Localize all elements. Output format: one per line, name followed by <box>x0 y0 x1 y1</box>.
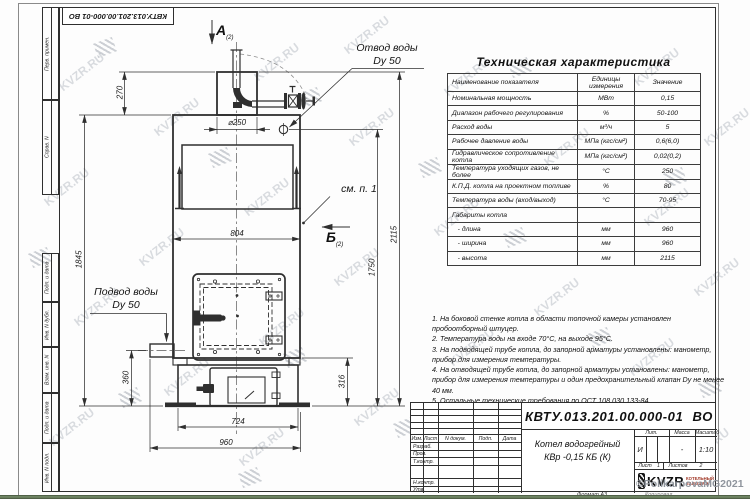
product-name: Котел водогрейный КВр -0,15 КБ (К) <box>521 429 634 473</box>
table-cell: К.П.Д. котла на проектном топливе <box>448 179 578 193</box>
table-row: Габариты котла <box>448 208 701 222</box>
dim-label-724: 724 <box>217 417 259 426</box>
table-cell: МПа (кгс/см²) <box>578 135 635 149</box>
dimension-lines <box>85 72 400 448</box>
dim-label-1845: 1845 <box>75 245 84 275</box>
tech-table-header: Наименование показателя Единицы измерени… <box>448 74 701 92</box>
dim-label-360: 360 <box>122 363 131 393</box>
table-cell: мм <box>578 237 635 251</box>
tb-col-ndokum: N докум. <box>438 436 473 442</box>
tb-sheet-label: Лист <box>636 463 654 469</box>
table-cell: - длина <box>448 222 578 236</box>
table-row: Расход водым³/ч5 <box>448 120 701 134</box>
product-line2: КВр -0,15 КБ (К) <box>544 451 611 464</box>
table-cell: - ширина <box>448 237 578 251</box>
table-cell: Диапазон рабочего регулирования <box>448 106 578 120</box>
dim-label-316: 316 <box>338 367 347 397</box>
table-cell: Температура уходящих газов, не более <box>448 164 578 179</box>
drawing-sheet: KVZR.RUKVZR.RUKVZR.RUKVZR.RUKVZR.RUKVZR.… <box>0 0 750 500</box>
table-cell: °С <box>578 193 635 207</box>
table-cell: 0,6(6,0) <box>635 135 701 149</box>
table-cell: Гидравлическое сопротивление котла <box>448 149 578 164</box>
table-cell: Температура воды (вход/выход) <box>448 193 578 207</box>
title-block-designation: КВТУ.013.201.00.000-01 ВО <box>521 403 717 429</box>
tb-col-list: Лист <box>423 436 438 442</box>
tech-table: Наименование показателя Единицы измерени… <box>447 73 701 266</box>
table-row: Рабочее давление водыМПа (кгс/см²)0,6(6,… <box>448 135 701 149</box>
swing-arc <box>240 54 307 99</box>
outlet-label: Отвод воды <box>348 42 426 54</box>
col-header: Наименование показателя <box>448 74 578 92</box>
table-cell: МПа (кгс/см²) <box>578 149 635 164</box>
table-cell: Рабочее давление воды <box>448 135 578 149</box>
tb-row-utv: Утв. <box>413 487 425 493</box>
table-cell <box>578 208 635 222</box>
dim-label-270: 270 <box>116 78 125 108</box>
table-row: - длинамм960 <box>448 222 701 236</box>
table-cell: 0,15 <box>635 92 701 106</box>
table-row: К.П.Д. котла на проектном топливе%80 <box>448 179 701 193</box>
table-cell: 0,02(0,2) <box>635 149 701 164</box>
tb-col-izm: Изм. <box>411 436 423 442</box>
table-cell: 70-95 <box>635 193 701 207</box>
view-b-label: Б(2) <box>326 229 343 248</box>
inlet-dn: Dy 50 <box>86 299 166 311</box>
table-cell: % <box>578 106 635 120</box>
table-row: Температура уходящих газов, не более°С25… <box>448 164 701 179</box>
tb-scale-value: 1:10 <box>695 445 717 454</box>
table-cell: Расход воды <box>448 120 578 134</box>
table-cell: 250 <box>635 164 701 179</box>
table-cell: МВт <box>578 92 635 106</box>
table-row: Номинальная мощностьМВт0,15 <box>448 92 701 106</box>
table-cell: мм <box>578 251 635 265</box>
tech-table-title: Техническая характеристика <box>447 55 700 69</box>
dim-label-804: 804 <box>216 229 258 238</box>
table-row: Диапазон рабочего регулирования%50-100 <box>448 106 701 120</box>
tb-sheet-value: 1 <box>654 463 663 469</box>
dim-label-1750: 1750 <box>368 253 377 283</box>
note-item: 4. На отводящей трубе котла, до запорной… <box>432 365 725 396</box>
table-cell: - высота <box>448 251 578 265</box>
outlet-dn: Dy 50 <box>348 55 426 67</box>
ash-door <box>210 368 277 406</box>
tb-col-podp: Подп. <box>473 436 498 442</box>
tb-row-nkontr: Н.контр. <box>413 480 435 486</box>
table-cell: 5 <box>635 120 701 134</box>
tb-lit-value: И <box>634 445 646 454</box>
tb-lit-label: Лит. <box>634 430 669 436</box>
table-cell: 80 <box>635 179 701 193</box>
table-row: Гидравлическое сопротивление котлаМПа (к… <box>448 149 701 164</box>
table-cell: °С <box>578 164 635 179</box>
table-cell: 2115 <box>635 251 701 265</box>
upper-opening <box>175 145 301 209</box>
tb-row-razrab: Разраб. <box>413 444 432 450</box>
table-cell: % <box>578 179 635 193</box>
credit-watermark: ©PolikarpovaMG2021 <box>636 478 750 490</box>
centerlines <box>138 42 237 434</box>
view-a-label: А(2) <box>216 22 233 41</box>
note-item: 3. На подводящей трубе котла, до запорно… <box>432 345 725 365</box>
table-row: - ширинамм960 <box>448 237 701 251</box>
tb-row-tkontr: Т.контр. <box>413 459 434 465</box>
note-item: 2. Температура воды на входе 70°С, на вы… <box>432 334 725 344</box>
table-cell: 960 <box>635 222 701 236</box>
dim-label-2115: 2115 <box>390 220 399 250</box>
tb-mass-value: - <box>669 445 695 454</box>
tb-row-prov: Пров. <box>413 451 427 457</box>
table-cell: Номинальная мощность <box>448 92 578 106</box>
table-row: - высотамм2115 <box>448 251 701 265</box>
tb-mass-label: Масса <box>669 430 695 436</box>
table-row: Температура воды (вход/выход)°С70-95 <box>448 193 701 207</box>
see-note-label: см. п. 1 <box>328 183 390 195</box>
table-cell: м³/ч <box>578 120 635 134</box>
ash-door-handle <box>203 384 214 393</box>
product-line1: Котел водогрейный <box>535 438 621 451</box>
table-cell: 960 <box>635 237 701 251</box>
col-header: Единицы измерения <box>578 74 635 92</box>
table-cell: мм <box>578 222 635 236</box>
fuel-door <box>193 274 285 360</box>
notes-list: 1. На боковой стенке котла в области топ… <box>432 314 725 406</box>
inlet-label: Подвод воды <box>86 286 166 298</box>
base-section <box>165 358 310 407</box>
table-cell <box>635 208 701 222</box>
tb-sheets-label: Листов <box>665 463 691 469</box>
tb-sheets-value: 2 <box>695 463 707 469</box>
table-cell: 50-100 <box>635 106 701 120</box>
dim-label-250: ⌀250 <box>215 118 259 127</box>
table-cell: Габариты котла <box>448 208 578 222</box>
extension-lines <box>79 72 405 452</box>
bottom-green-bar <box>0 495 750 499</box>
col-header: Значение <box>635 74 701 92</box>
tech-table-body: Номинальная мощностьМВт0,15Диапазон рабо… <box>448 92 701 266</box>
note-item: 1. На боковой стенке котла в области топ… <box>432 314 725 334</box>
tb-col-data: Дата <box>498 436 521 442</box>
tb-scale-label: Масштаб <box>695 430 717 436</box>
dim-label-960: 960 <box>205 438 247 447</box>
